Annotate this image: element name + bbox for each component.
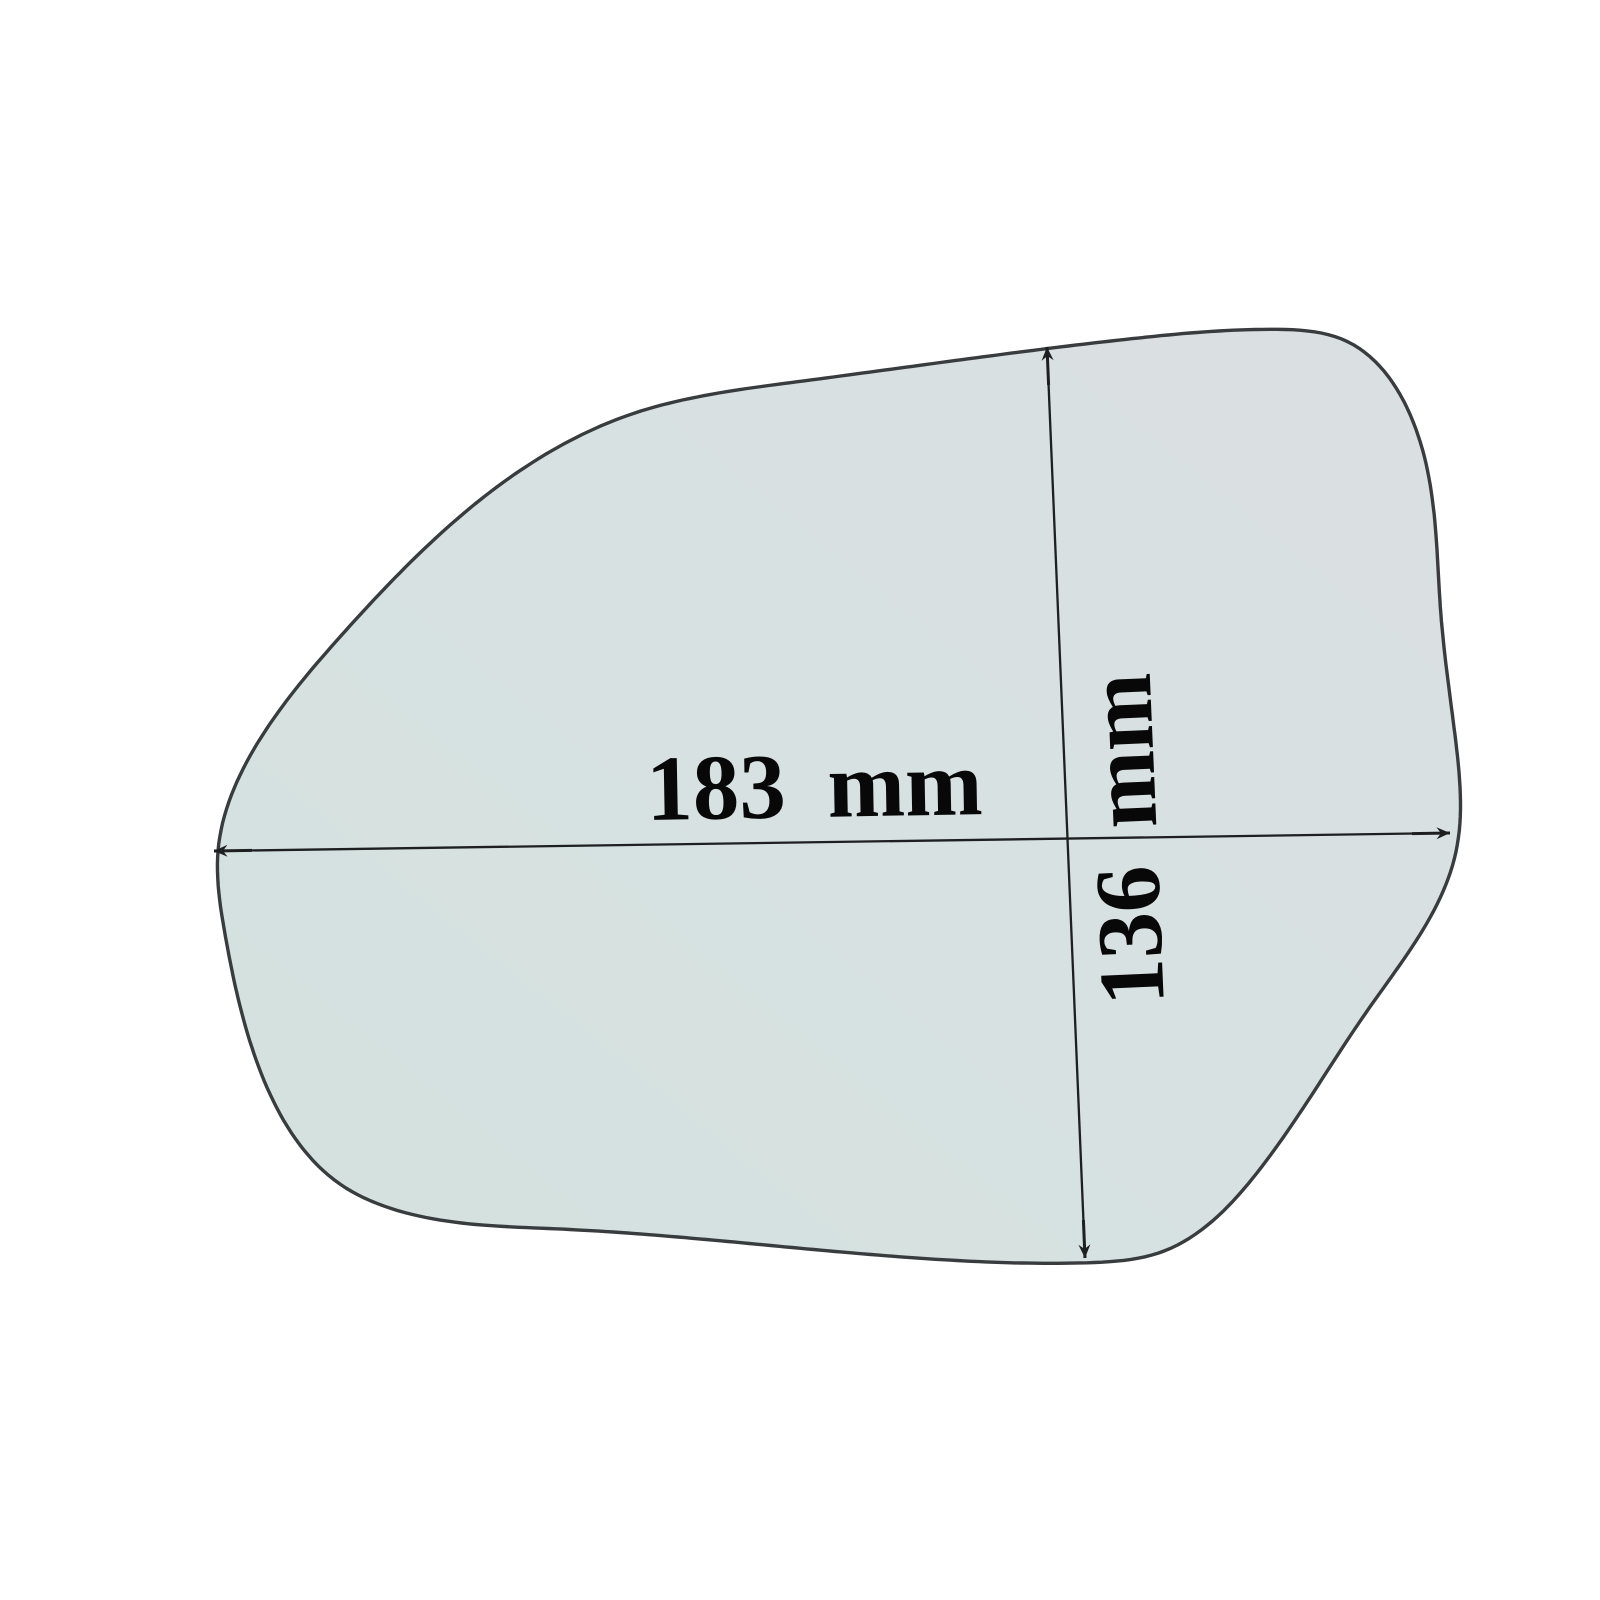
svg-text:183: 183 (645, 736, 786, 841)
svg-text:136: 136 (1076, 864, 1185, 1008)
svg-text:mm: mm (1068, 671, 1178, 830)
svg-text:mm: mm (827, 732, 984, 838)
